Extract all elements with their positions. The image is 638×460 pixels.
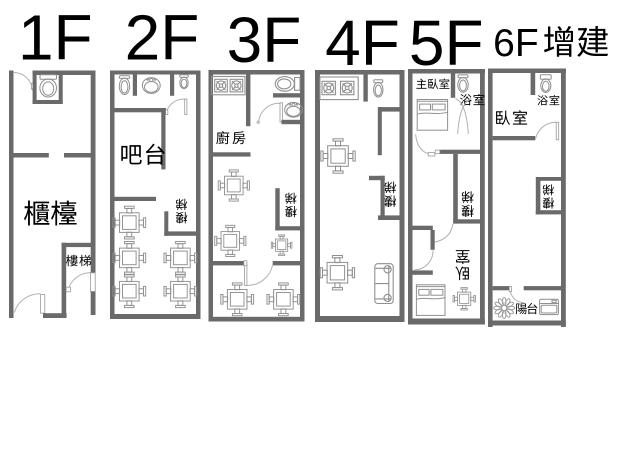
svg-text:1F: 1F — [18, 1, 93, 73]
svg-text:6F: 6F — [493, 22, 539, 65]
svg-text:5F: 5F — [409, 7, 484, 79]
svg-text:2F: 2F — [125, 1, 200, 73]
svg-text:3F: 3F — [227, 4, 302, 76]
svg-text:4F: 4F — [325, 7, 400, 79]
